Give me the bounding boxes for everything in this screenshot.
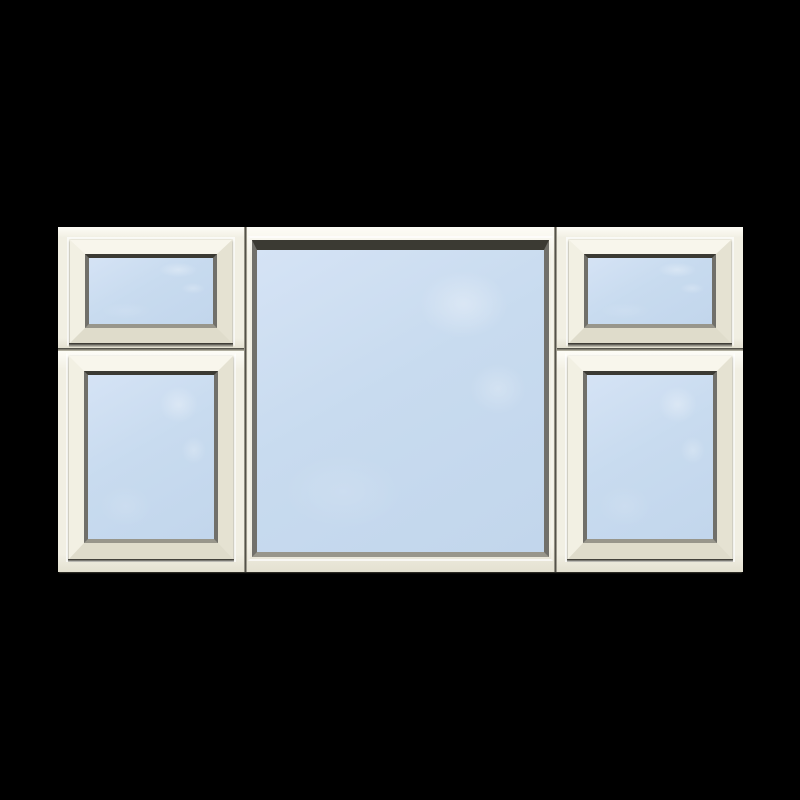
glazing-bead: [252, 240, 549, 557]
glazing-bead: [84, 371, 218, 543]
sash-shadow: [69, 343, 233, 347]
centre-column: [247, 227, 554, 572]
sash-shadow: [68, 559, 234, 562]
centre-fixed-pane: [247, 227, 554, 572]
sash-shadow: [568, 343, 732, 347]
right-top-vent-glass: [588, 258, 712, 324]
centre-glass: [257, 250, 544, 552]
glazing-bead: [584, 254, 716, 328]
black-background: [0, 0, 800, 800]
right-top-vent-sash: [569, 240, 731, 343]
left-top-vent: [58, 227, 244, 348]
glazing-bead: [85, 254, 217, 328]
right-top-vent: [557, 227, 743, 348]
right-column: [557, 227, 743, 572]
glazing-bead: [583, 371, 717, 543]
right-bottom-casement-glass: [587, 375, 713, 539]
right-bottom-casement: [557, 351, 743, 572]
left-bottom-casement-sash: [69, 356, 233, 559]
right-bottom-casement-sash: [568, 356, 732, 559]
left-column: [58, 227, 244, 572]
left-bottom-casement: [58, 351, 244, 572]
left-top-vent-glass: [89, 258, 213, 324]
upvc-window: [58, 227, 743, 572]
left-top-vent-sash: [70, 240, 232, 343]
left-bottom-casement-glass: [88, 375, 214, 539]
sash-shadow: [567, 559, 733, 562]
